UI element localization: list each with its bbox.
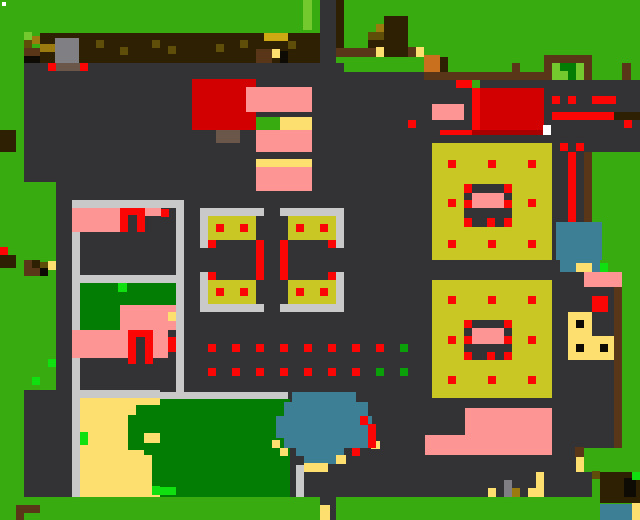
map-tile xyxy=(464,352,472,360)
wall-horizontal xyxy=(424,72,544,80)
map-tile xyxy=(448,296,456,304)
map-tile xyxy=(528,199,536,207)
map-tile xyxy=(128,215,137,232)
map-tile xyxy=(560,143,568,151)
map-tile xyxy=(600,263,608,272)
white-tile xyxy=(543,125,551,135)
map-tile xyxy=(48,359,56,367)
map-tile xyxy=(24,260,32,268)
map-tile xyxy=(400,368,408,376)
map-tile xyxy=(208,272,216,280)
pink-room-top xyxy=(72,208,120,232)
map-tile xyxy=(464,184,472,193)
map-tile xyxy=(118,283,127,292)
map-tile xyxy=(560,63,576,71)
map-tile xyxy=(152,486,160,495)
field xyxy=(160,399,290,497)
map-tile xyxy=(336,216,344,248)
gray-block xyxy=(55,38,79,63)
red-arch-right xyxy=(145,337,153,364)
dice-dot xyxy=(600,344,608,352)
map-tile xyxy=(352,344,360,352)
map-tile xyxy=(161,209,169,217)
white-dot xyxy=(2,2,6,6)
map-tile xyxy=(536,472,544,488)
map-tile xyxy=(128,433,144,450)
red-bar xyxy=(472,88,480,130)
map-tile xyxy=(200,304,264,312)
wall-right-lower xyxy=(614,287,622,448)
pond-right xyxy=(556,222,602,260)
map-tile xyxy=(288,41,296,49)
road-mid xyxy=(72,275,184,283)
map-tile xyxy=(24,56,40,63)
green-tile-block xyxy=(256,117,280,130)
map-tile xyxy=(160,487,176,495)
map-tile xyxy=(528,296,536,304)
pink-building-step xyxy=(425,435,465,455)
wall-bump xyxy=(512,63,520,72)
map-tile xyxy=(272,440,280,448)
road-top xyxy=(80,200,184,208)
map-tile xyxy=(0,255,16,268)
green-room-2 xyxy=(80,305,120,330)
map-tile xyxy=(200,208,264,216)
pond xyxy=(284,402,368,416)
map-tile xyxy=(528,488,544,497)
map-tile xyxy=(256,368,264,376)
map-tile xyxy=(528,336,536,344)
map-tile xyxy=(256,49,272,63)
map-tile xyxy=(168,337,176,352)
map-tile xyxy=(488,376,496,384)
map-tile xyxy=(280,51,288,63)
map-tile xyxy=(504,352,512,360)
map-tile xyxy=(296,465,304,497)
map-tile xyxy=(208,344,216,352)
map-tile xyxy=(464,200,472,208)
teal-corner xyxy=(600,504,632,520)
pink-awning-2 xyxy=(256,130,312,152)
map-tile xyxy=(376,47,384,57)
map-tile xyxy=(360,416,368,425)
monument-2-center xyxy=(472,328,504,344)
map-tile xyxy=(448,376,456,384)
dark-red-strip xyxy=(472,130,544,135)
pink-building-bottom xyxy=(465,408,552,455)
map-tile xyxy=(40,44,56,52)
map-tile xyxy=(56,63,80,71)
map-tile xyxy=(144,443,160,455)
map-tile xyxy=(504,184,512,193)
orange-block xyxy=(424,55,440,72)
red-arch-top xyxy=(128,330,153,337)
brown-l-shape xyxy=(16,505,40,513)
map-tile xyxy=(504,480,512,497)
right-green-lower xyxy=(622,272,640,472)
red-square xyxy=(592,296,608,312)
pink-small xyxy=(432,104,464,120)
map-tile xyxy=(624,478,636,497)
map-tile xyxy=(528,160,536,168)
green-gap-top-right xyxy=(592,55,622,80)
map-tile xyxy=(320,288,328,296)
map-tile xyxy=(576,143,584,151)
map-tile xyxy=(464,320,472,328)
red-arch-left xyxy=(128,337,136,364)
map-tile xyxy=(240,288,248,296)
map-tile xyxy=(336,455,346,464)
beach-road xyxy=(80,390,160,398)
yellow-block xyxy=(264,33,288,41)
map-tile xyxy=(488,240,496,248)
map-tile xyxy=(416,47,424,57)
map-tile xyxy=(304,463,328,472)
pond xyxy=(276,416,372,438)
map-tile xyxy=(328,240,336,248)
map-tile xyxy=(80,432,88,445)
map-tile xyxy=(328,272,336,280)
map-tile xyxy=(136,405,160,415)
map-tile xyxy=(232,344,240,352)
map-tile xyxy=(632,503,640,520)
map-tile xyxy=(208,240,216,248)
map-tile xyxy=(576,263,592,272)
pink-right xyxy=(584,272,622,287)
dice-dot xyxy=(576,344,584,352)
brown-l-shape xyxy=(16,513,24,520)
map-tile xyxy=(32,36,40,44)
map-tile xyxy=(256,344,264,352)
map-tile xyxy=(552,96,560,104)
map-tile xyxy=(280,344,288,352)
map-tile xyxy=(304,368,312,376)
map-tile xyxy=(328,344,336,352)
map-tile xyxy=(128,415,160,433)
map-tile xyxy=(280,368,288,376)
map-tile xyxy=(568,71,576,80)
map-tile xyxy=(240,224,248,232)
arch-gap xyxy=(136,337,145,358)
pink-awning-3 xyxy=(256,167,312,191)
map-tile xyxy=(32,377,40,385)
field-road xyxy=(160,392,288,399)
map-tile xyxy=(408,47,416,57)
map-tile xyxy=(216,288,224,296)
map-tile xyxy=(568,96,576,104)
map-tile xyxy=(152,40,160,48)
map-tile xyxy=(145,208,161,216)
map-tile xyxy=(24,48,40,56)
map-tile xyxy=(152,455,160,487)
map-tile xyxy=(512,488,520,497)
brown-block xyxy=(216,130,240,143)
pond xyxy=(284,438,368,448)
map-tile xyxy=(448,240,456,248)
map-tile xyxy=(528,240,536,248)
map-tile xyxy=(320,505,330,520)
map-tile xyxy=(400,344,408,352)
map-tile xyxy=(614,112,640,120)
red-bar xyxy=(256,240,264,280)
dice-dot xyxy=(576,320,584,328)
map-tile xyxy=(24,32,32,40)
map-tile xyxy=(472,80,480,88)
map-tile xyxy=(328,368,336,376)
red-bar xyxy=(280,240,288,280)
map-tile xyxy=(24,40,32,48)
map-tile xyxy=(48,261,56,270)
map-tile xyxy=(408,120,416,128)
map-tile xyxy=(440,130,472,135)
map-tile xyxy=(592,471,600,479)
map-tile xyxy=(32,260,40,268)
map-tile xyxy=(280,448,288,456)
map-tile xyxy=(504,336,512,344)
map-tile xyxy=(0,247,8,255)
yellow-strip xyxy=(280,117,312,130)
red-strip xyxy=(592,96,616,104)
map-tile xyxy=(368,424,376,448)
dark-column-top xyxy=(320,0,336,80)
map-tile xyxy=(296,288,304,296)
light-green-column xyxy=(303,0,312,30)
map-tile xyxy=(232,368,240,376)
map-tile xyxy=(504,320,512,328)
map-tile xyxy=(296,224,304,232)
map-tile xyxy=(240,40,248,48)
map-tile xyxy=(376,344,384,352)
red-strip xyxy=(552,112,614,120)
map-tile xyxy=(320,224,328,232)
map-tile xyxy=(448,160,456,168)
map-tile xyxy=(280,208,344,216)
map-tile xyxy=(456,80,472,88)
map-tile xyxy=(504,200,512,208)
map-tile xyxy=(464,336,472,344)
map-tile xyxy=(208,368,216,376)
tree-canopy xyxy=(384,16,408,57)
map-tile xyxy=(632,472,640,480)
game-map[interactable] xyxy=(0,0,640,520)
map-tile xyxy=(488,160,496,168)
big-red-block xyxy=(480,88,544,130)
map-tile xyxy=(487,218,495,227)
green-edge-sliver xyxy=(631,63,640,80)
map-tile xyxy=(576,457,584,472)
pink-awning-1 xyxy=(246,87,312,112)
map-tile xyxy=(168,46,176,54)
pond xyxy=(292,392,356,402)
map-tile xyxy=(624,120,632,128)
road-vertical-right xyxy=(176,208,184,392)
map-tile xyxy=(488,488,496,497)
map-tile xyxy=(304,344,312,352)
map-tile xyxy=(368,32,384,40)
monument-1-center xyxy=(472,193,504,208)
map-tile xyxy=(352,368,360,376)
map-tile xyxy=(96,40,104,48)
map-tile xyxy=(24,268,40,276)
map-tile xyxy=(464,218,472,227)
map-tile xyxy=(216,224,224,232)
green-room xyxy=(80,283,176,305)
map-tile xyxy=(216,44,224,52)
yellow-strip xyxy=(256,159,312,167)
map-tile xyxy=(200,216,208,248)
map-tile xyxy=(352,448,360,456)
map-tile xyxy=(120,47,128,55)
green-bottom-right xyxy=(584,448,640,472)
map-tile xyxy=(280,304,344,312)
map-tile xyxy=(487,352,495,360)
map-tile xyxy=(448,199,456,207)
map-tile xyxy=(376,368,384,376)
red-bar-vertical xyxy=(568,152,576,232)
map-tile xyxy=(40,268,48,276)
pink-room-bottom xyxy=(72,330,168,358)
green-sliver xyxy=(592,479,600,497)
map-tile xyxy=(448,336,456,344)
map-tile xyxy=(0,130,16,152)
map-tile xyxy=(575,447,584,457)
map-tile xyxy=(504,218,512,227)
map-tile xyxy=(80,63,88,71)
map-tile xyxy=(488,296,496,304)
map-tile xyxy=(48,63,56,71)
map-tile xyxy=(376,24,384,32)
map-tile xyxy=(272,49,280,58)
map-tile xyxy=(168,312,176,321)
map-tile xyxy=(528,376,536,384)
